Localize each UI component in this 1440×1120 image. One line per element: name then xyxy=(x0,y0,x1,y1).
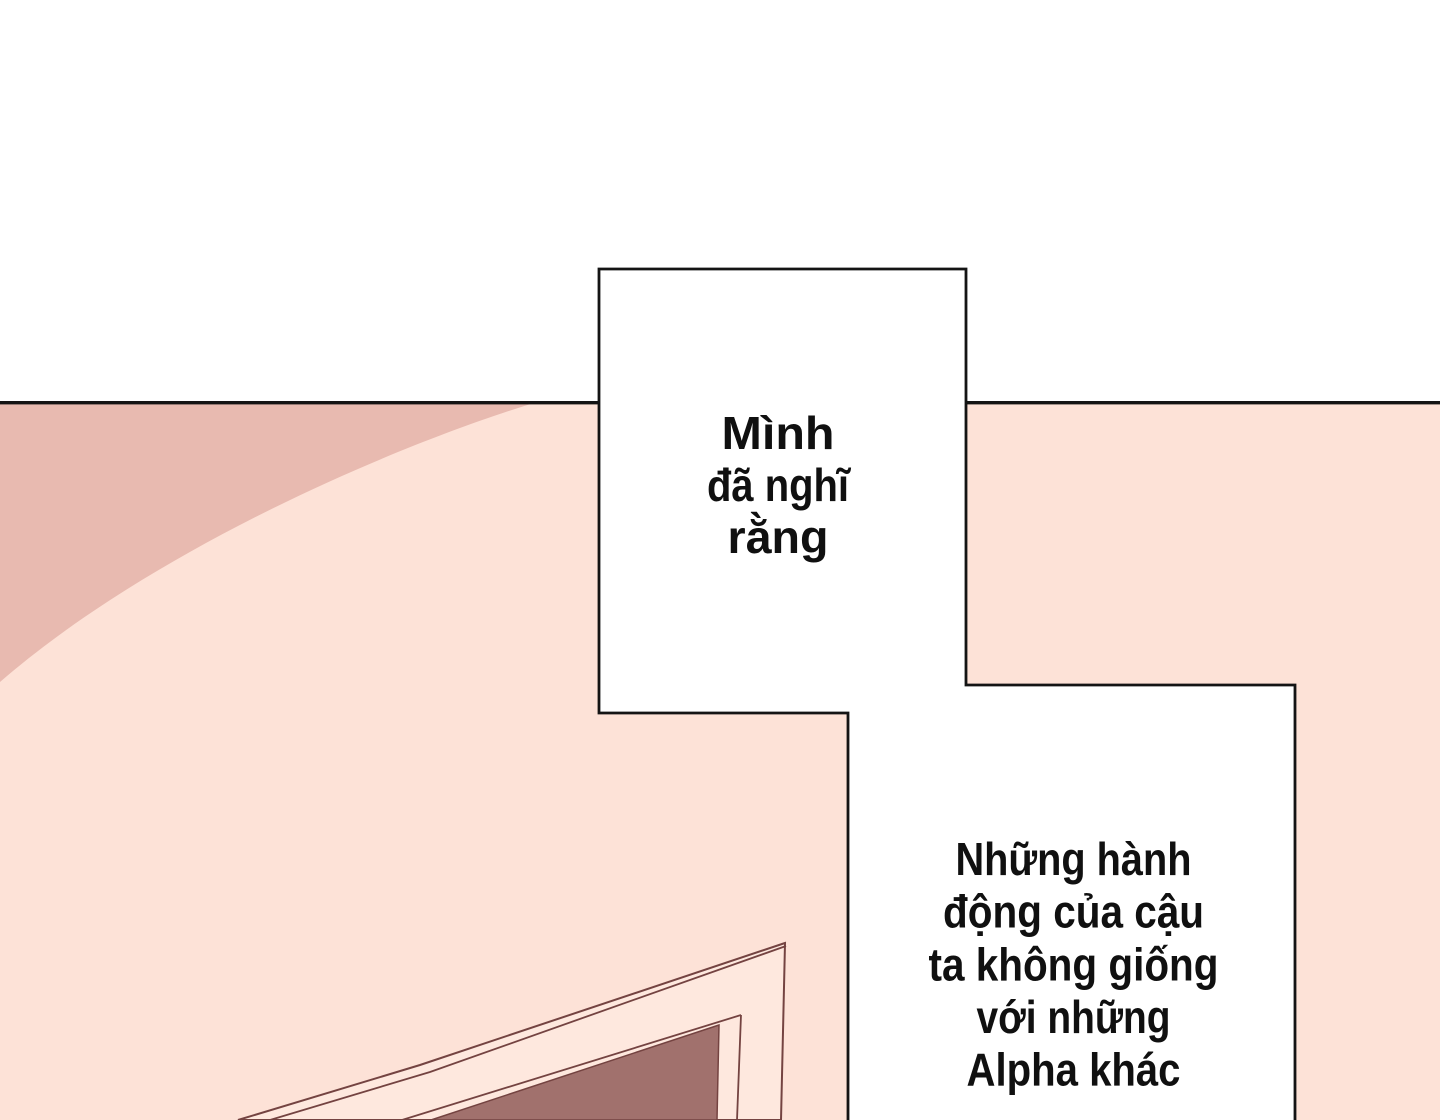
svg-text:ta không giống: ta không giống xyxy=(929,939,1219,991)
svg-text:Mình: Mình xyxy=(722,407,835,459)
svg-text:rằng: rằng xyxy=(728,511,829,563)
svg-text:với những: với những xyxy=(977,991,1171,1043)
svg-text:động của cậu: động của cậu xyxy=(943,886,1204,938)
svg-text:Alpha khác: Alpha khác xyxy=(967,1044,1181,1096)
svg-text:đã nghĩ: đã nghĩ xyxy=(707,459,852,511)
svg-text:Những hành: Những hành xyxy=(956,833,1192,885)
